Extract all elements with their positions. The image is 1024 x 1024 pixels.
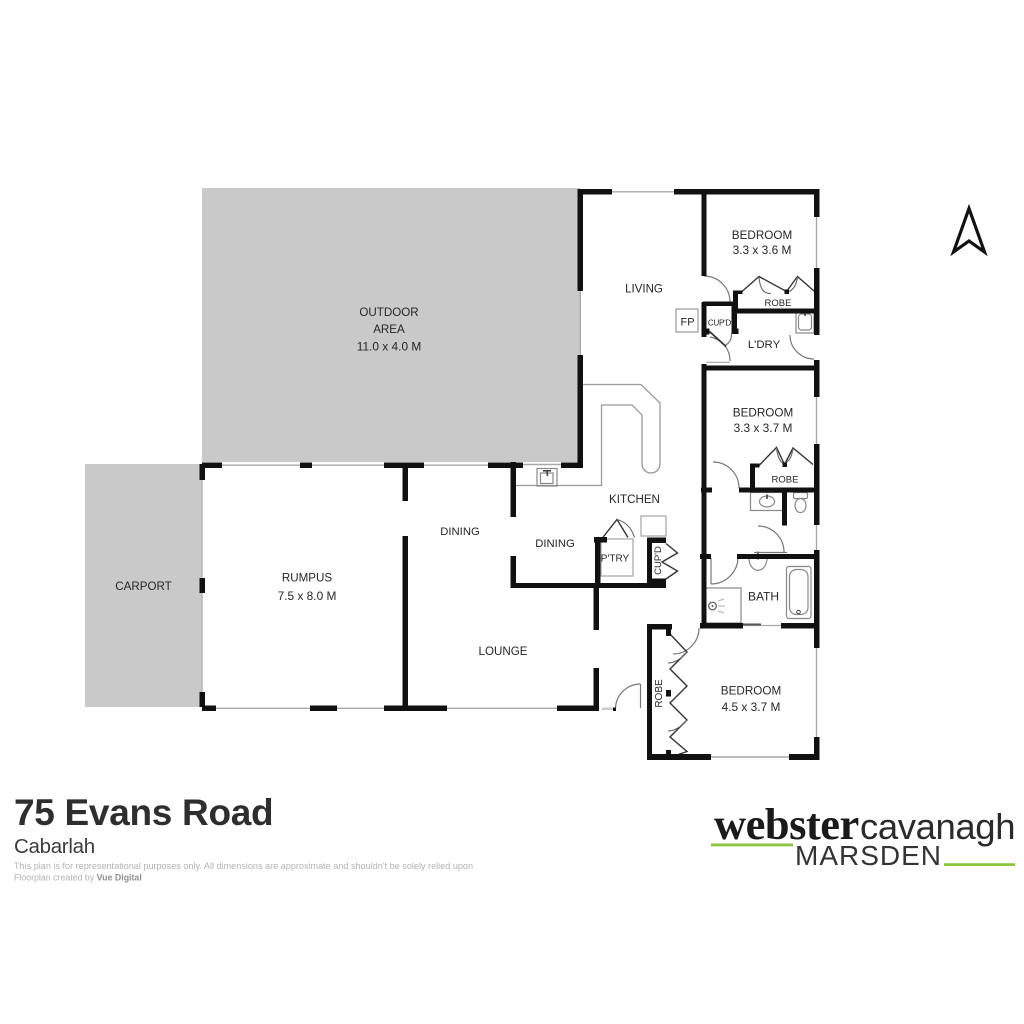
svg-text:Floorplan created by Vue Digit: Floorplan created by Vue Digital xyxy=(14,873,142,883)
svg-text:FP: FP xyxy=(680,317,694,329)
svg-text:11.0 x 4.0 M: 11.0 x 4.0 M xyxy=(357,340,422,354)
svg-text:MARSDEN: MARSDEN xyxy=(795,840,942,871)
svg-text:BEDROOM: BEDROOM xyxy=(732,229,792,242)
svg-text:AREA: AREA xyxy=(373,323,405,336)
svg-text:ROBE: ROBE xyxy=(765,298,792,309)
svg-text:ROBE: ROBE xyxy=(654,679,665,708)
svg-text:Cabarlah: Cabarlah xyxy=(14,835,95,858)
svg-text:CUP'D: CUP'D xyxy=(708,319,732,328)
svg-text:LOUNGE: LOUNGE xyxy=(479,645,528,658)
svg-text:CUP'D: CUP'D xyxy=(653,546,664,575)
svg-text:LIVING: LIVING xyxy=(625,284,663,296)
svg-text:OUTDOOR: OUTDOOR xyxy=(359,306,418,319)
svg-text:BATH: BATH xyxy=(748,590,779,604)
svg-text:RUMPUS: RUMPUS xyxy=(282,572,333,585)
svg-text:7.5 x 8.0 M: 7.5 x 8.0 M xyxy=(278,589,337,603)
svg-text:3.3 x 3.7 M: 3.3 x 3.7 M xyxy=(734,421,793,435)
svg-text:3.3 x 3.6 M: 3.3 x 3.6 M xyxy=(733,243,792,257)
svg-text:DINING: DINING xyxy=(535,538,575,550)
svg-text:ROBE: ROBE xyxy=(772,475,799,486)
svg-text:4.5 x 3.7 M: 4.5 x 3.7 M xyxy=(722,700,781,714)
svg-text:DINING: DINING xyxy=(440,526,480,538)
svg-text:CARPORT: CARPORT xyxy=(115,580,171,593)
svg-text:L'DRY: L'DRY xyxy=(748,339,781,351)
svg-text:KITCHEN: KITCHEN xyxy=(609,493,660,506)
svg-text:This plan is for representatio: This plan is for representational purpos… xyxy=(14,861,473,871)
svg-text:BEDROOM: BEDROOM xyxy=(733,407,793,420)
svg-text:75 Evans Road: 75 Evans Road xyxy=(14,792,273,833)
svg-text:P'TRY: P'TRY xyxy=(601,554,630,565)
svg-text:BEDROOM: BEDROOM xyxy=(721,685,781,698)
